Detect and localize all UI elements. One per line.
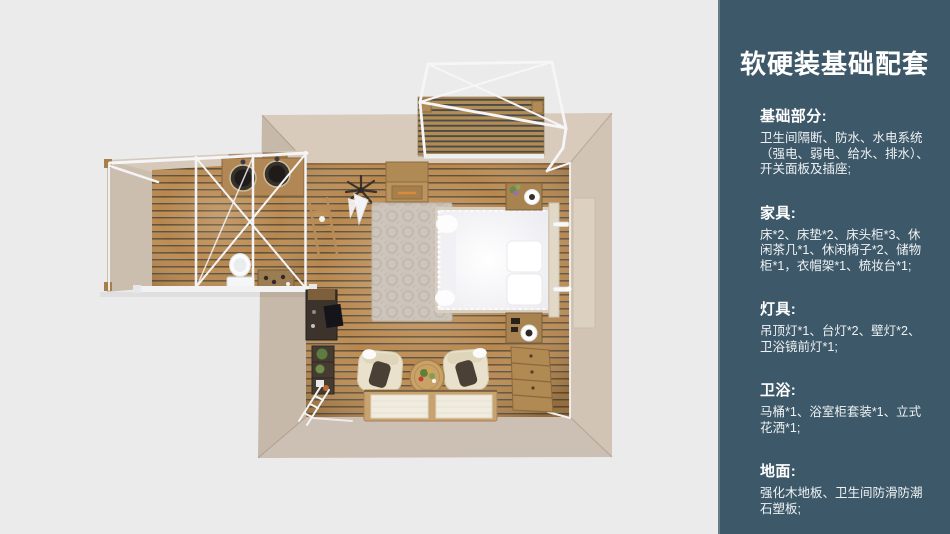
floor-mats bbox=[364, 390, 497, 421]
slide: 软硬装基础配套 基础部分: 卫生间隔断、防水、水电系统 （强电、弱电、给水、排水… bbox=[0, 0, 950, 534]
wall-panel bbox=[573, 198, 595, 328]
section-lighting: 灯具: 吊顶灯*1、台灯*2、壁灯*2、 卫浴镜前灯*1; bbox=[760, 298, 938, 355]
info-panel: 软硬装基础配套 基础部分: 卫生间隔断、防水、水电系统 （强电、弱电、给水、排水… bbox=[718, 0, 950, 534]
section-bathroom: 卫浴: 马桶*1、浴室柜套装*1、立式 花洒*1; bbox=[760, 379, 938, 436]
panel-title: 软硬装基础配套 bbox=[740, 44, 934, 81]
section-heading: 地面: bbox=[760, 460, 938, 481]
section-flooring: 地面: 强化木地板、卫生间防滑防潮 石塑板; bbox=[760, 460, 938, 517]
plant-shelf bbox=[312, 346, 334, 394]
section-body: 卫生间隔断、防水、水电系统 （强电、弱电、给水、排水）、 开关面板及插座; bbox=[760, 131, 938, 178]
double-bed bbox=[435, 203, 559, 317]
table-lamp-2 bbox=[521, 325, 537, 341]
section-heading: 家具: bbox=[760, 202, 938, 223]
panel-sections: 基础部分: 卫生间隔断、防水、水电系统 （强电、弱电、给水、排水）、 开关面板及… bbox=[760, 105, 938, 517]
section-heading: 灯具: bbox=[760, 298, 938, 319]
floor-plan-rendering bbox=[0, 0, 718, 534]
section-heading: 基础部分: bbox=[760, 105, 938, 126]
storage-cabinet bbox=[386, 162, 428, 202]
section-body: 床*2、床垫*2、床头柜*3、休 闲茶几*1、休闲椅子*2、储物 柜*1，衣帽架… bbox=[760, 228, 938, 275]
vanity-double-sinks bbox=[222, 153, 304, 196]
dresser bbox=[511, 347, 553, 412]
armchair-left bbox=[357, 349, 404, 394]
section-body: 强化木地板、卫生间防滑防潮 石塑板; bbox=[760, 486, 938, 517]
section-body: 马桶*1、浴室柜套装*1、立式 花洒*1; bbox=[760, 405, 938, 436]
section-body: 吊顶灯*1、台灯*2、壁灯*2、 卫浴镜前灯*1; bbox=[760, 324, 938, 355]
section-basics: 基础部分: 卫生间隔断、防水、水电系统 （强电、弱电、给水、排水）、 开关面板及… bbox=[760, 105, 938, 178]
nightstand-bottom bbox=[506, 313, 542, 343]
armchair-right bbox=[443, 348, 490, 393]
section-heading: 卫浴: bbox=[760, 379, 938, 400]
nightstand-top bbox=[506, 183, 542, 210]
headboard bbox=[549, 203, 559, 317]
section-furniture: 家具: 床*2、床垫*2、床头柜*3、休 闲茶几*1、休闲椅子*2、储物 柜*1… bbox=[760, 202, 938, 275]
table-lamp bbox=[525, 190, 540, 205]
coffee-table bbox=[410, 360, 444, 394]
